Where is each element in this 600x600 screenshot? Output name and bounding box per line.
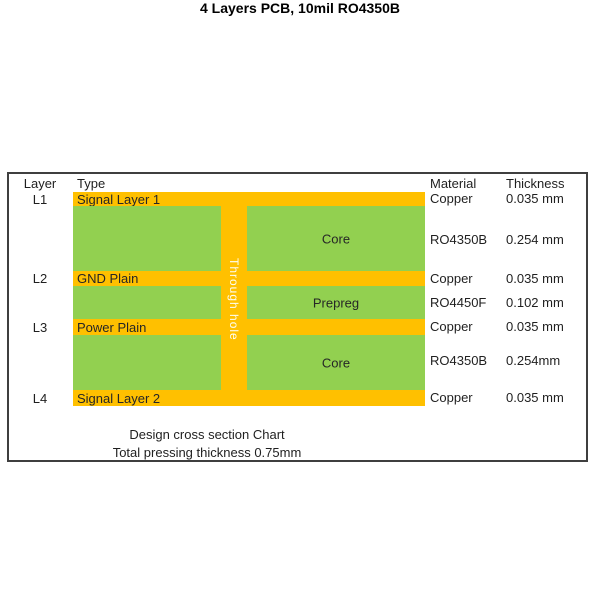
material-cell: Copper <box>430 391 473 405</box>
row-label-l1: L1 <box>13 192 67 206</box>
column-header-layer: Layer <box>13 177 67 191</box>
column-header-material: Material <box>430 177 476 191</box>
dielectric-label: Prepreg <box>247 295 425 310</box>
core-block-2: Core <box>73 335 425 390</box>
footer-note-line1: Design cross section Chart <box>7 427 407 442</box>
row-label-l4: L4 <box>13 390 67 406</box>
thickness-cell: 0.035 mm <box>506 391 564 405</box>
dielectric-label: Core <box>247 231 425 246</box>
column-header-type: Type <box>77 177 105 191</box>
copper-bar-l1: Signal Layer 1 <box>73 192 425 206</box>
row-label-l3: L3 <box>13 319 67 335</box>
thickness-cell: 0.035 mm <box>506 320 564 334</box>
thickness-cell: 0.254mm <box>506 354 560 368</box>
material-cell: RO4350B <box>430 354 487 368</box>
layer-type-label: Signal Layer 1 <box>73 193 160 206</box>
core-block-1: Core <box>73 206 425 271</box>
copper-bar-l4: Signal Layer 2 <box>73 390 425 406</box>
thickness-cell: 0.035 mm <box>506 192 564 206</box>
material-cell: Copper <box>430 320 473 334</box>
pcb-stackup-page: 4 Layers PCB, 10mil RO4350B Layer Type M… <box>0 0 600 600</box>
thickness-cell: 0.254 mm <box>506 233 564 247</box>
material-cell: Copper <box>430 192 473 206</box>
thickness-cell: 0.035 mm <box>506 272 564 286</box>
dielectric-label: Core <box>247 355 425 370</box>
material-cell: RO4350B <box>430 233 487 247</box>
through-hole-label: Through hole <box>227 258 241 341</box>
through-hole-bar: Through hole <box>221 192 247 406</box>
layer-type-label: GND Plain <box>73 272 138 285</box>
footer-note-line2: Total pressing thickness 0.75mm <box>7 445 407 460</box>
copper-bar-l2: GND Plain <box>73 271 425 286</box>
prepreg-block: Prepreg <box>73 286 425 319</box>
copper-bar-l3: Power Plain <box>73 319 425 335</box>
layer-type-label: Signal Layer 2 <box>73 392 160 405</box>
material-cell: RO4450F <box>430 296 486 310</box>
column-header-thickness: Thickness <box>506 177 565 191</box>
thickness-cell: 0.102 mm <box>506 296 564 310</box>
layer-type-label: Power Plain <box>73 321 146 334</box>
page-title: 4 Layers PCB, 10mil RO4350B <box>0 0 600 16</box>
material-cell: Copper <box>430 272 473 286</box>
row-label-l2: L2 <box>13 271 67 286</box>
